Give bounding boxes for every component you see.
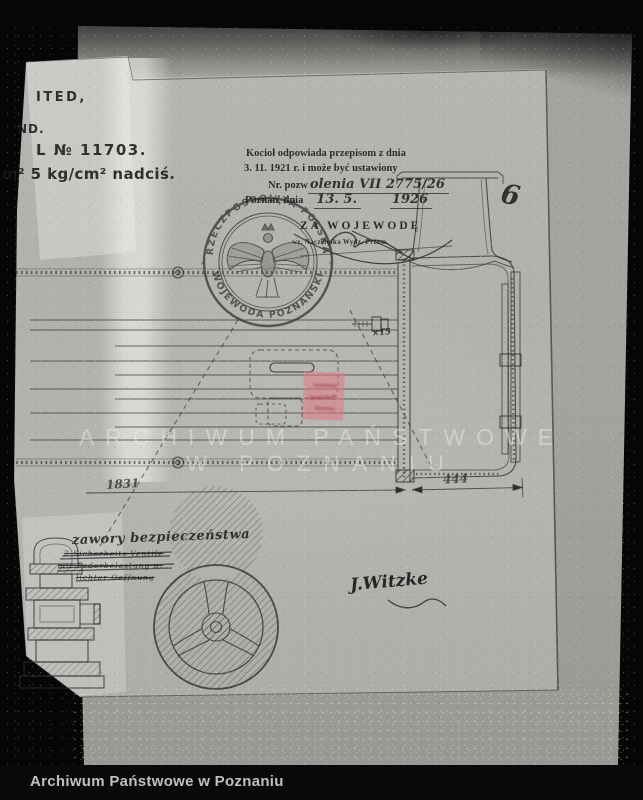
date-year: 1926	[390, 192, 432, 209]
struck-note-line-3: lichter Oeffnung	[76, 573, 155, 582]
struck-note-line-1: 2 Sicherheits-Ventile	[64, 549, 164, 558]
handwheel-drawing	[154, 486, 278, 689]
dim-label-right: 444	[443, 471, 469, 486]
archival-scan: RZECZPOSPOLITA POLSKA WOJEWODA POZNAŃSKI…	[0, 0, 643, 800]
red-stamp-mark	[313, 384, 337, 388]
place-label: Poznań, dnia	[245, 195, 303, 206]
red-ink-stamp	[302, 371, 345, 420]
permit-label: Nr. pozw	[268, 180, 308, 191]
corner-note-line2: ND.	[17, 122, 45, 136]
deputy-note: wz. Naczelnika Wydz. Przem.	[292, 239, 389, 246]
za-wojewode-label: ZA WOJEWODĘ	[300, 220, 421, 232]
bolt-note: ×15	[372, 327, 392, 339]
seal-text-bottom: WOJEWODA POZNAŃSKI	[209, 270, 327, 321]
hinge-crossbar	[500, 354, 521, 366]
seal-star-left: ✶	[200, 259, 207, 268]
stamp-line1: Kocioł odpowiada przepisom z dnia	[246, 148, 406, 159]
corner-note-line4: m² 5 kg/cm² nadciś.	[2, 165, 175, 183]
svg-text:WOJEWODA POZNAŃSKI: WOJEWODA POZNAŃSKI	[209, 270, 327, 321]
stamp-line2: 3. 11. 1921 r. i może być ustawiony	[244, 163, 398, 174]
red-stamp-mark	[309, 396, 337, 399]
dim-label-total: 1831	[106, 476, 140, 492]
seal-star-right: ✶	[328, 259, 335, 268]
hidden-detail-outline	[100, 310, 432, 546]
hatched-bracket	[396, 470, 414, 482]
boiler-barrel	[16, 262, 398, 472]
stamp-permit-line: Nr. pozwolenia VII 2775/26	[268, 177, 449, 192]
corner-note-line3: L № 11703.	[36, 141, 147, 159]
red-stamp-mark	[314, 406, 334, 410]
struck-note-line-2: mit Federbelastung u.	[58, 561, 163, 570]
footer-bar: Archiwum Państwowe w Poznaniu	[0, 765, 643, 800]
footer-label: Archiwum Państwowe w Poznaniu	[30, 773, 284, 790]
date-day: 13. 5.	[314, 192, 361, 209]
voivode-seal: RZECZPOSPOLITA POLSKA WOJEWODA POZNAŃSKI…	[200, 193, 335, 326]
corner-note-line1: ITED,	[36, 90, 87, 105]
hinge-crossbar	[500, 416, 521, 428]
firebox-shell	[396, 250, 521, 482]
stamp-date-line: Poznań, dnia 13. 5. 1926	[245, 192, 432, 207]
